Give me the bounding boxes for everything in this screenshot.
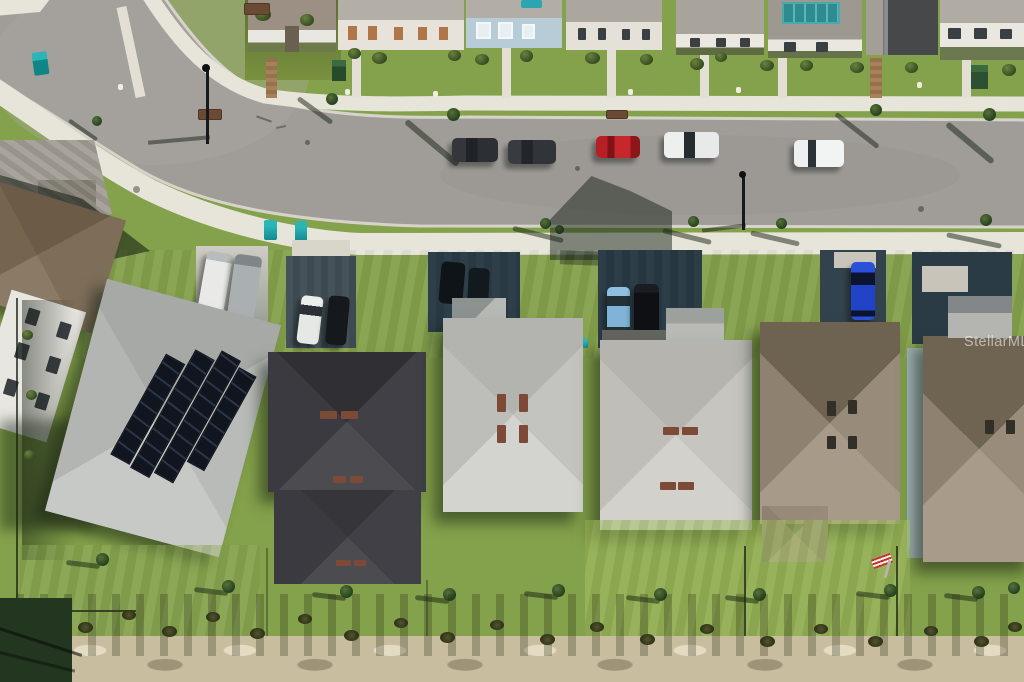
paver-walkway [870,58,882,98]
streetlight-head [739,171,746,178]
pool [521,0,542,8]
house-d-garage [666,308,724,342]
window [784,42,796,52]
tree [326,93,338,105]
ridge-vent [497,394,506,412]
shutter-window [418,27,427,40]
scrub-bush [700,624,714,634]
window [948,28,961,39]
scrub-bush [298,614,312,624]
scrub-bush [250,628,265,639]
bush [850,62,864,73]
bush [22,330,33,340]
tree [980,214,992,226]
window [816,42,828,52]
manhole [918,206,924,212]
utility-marker [433,91,438,97]
top-house-8 [940,0,1024,60]
watermark: StellarMLS [964,334,1024,350]
scrub-bush [974,636,989,647]
red-car [596,136,640,158]
bush [300,14,314,26]
bush [348,48,361,59]
teal-solar-panel [782,2,840,24]
scrub-bush [1008,622,1022,632]
ridge-vent [354,560,366,566]
window [578,28,586,40]
top-house-5 [676,0,764,55]
manhole [305,140,310,145]
scrub-bush [78,622,93,633]
roof-vent [848,436,857,449]
tree [1008,582,1020,594]
ridge-vent [341,411,358,419]
streetlight-head [202,64,210,72]
scrub-bush [760,636,775,647]
scrub-bush [206,612,220,622]
ridge-vent [682,427,698,435]
walkway [778,58,787,98]
house-e-roof [760,322,900,524]
streetlight-pole [742,176,745,230]
window [974,28,987,39]
tree [688,216,699,227]
house-b-roof-rear [268,352,426,492]
tree [447,108,460,121]
utility-marker [736,87,741,93]
tree [776,218,787,229]
scrub-bush [490,620,504,630]
dark-car [452,138,498,162]
aerial-photo: StellarMLS [0,0,1024,682]
scrub-bush [640,634,655,645]
tree [222,580,235,593]
bush [690,58,704,70]
utility-box [971,65,988,89]
top-house-6 [768,0,862,58]
ridge-vent [350,476,363,483]
manhole [133,186,140,193]
utility-marker [118,84,123,90]
ridge-vent [660,482,676,490]
roof-vent [1006,420,1015,434]
ridge-vent [320,411,337,419]
ridge-vent [663,427,679,435]
trash-bin [264,220,277,240]
scrub-bush [540,634,555,645]
trash-bin [295,221,307,241]
house-b-roof-front [274,490,421,584]
blue-car [851,262,875,320]
driveway-sunlit-patch [922,266,968,292]
bush [760,60,774,71]
manhole [575,166,580,171]
window [622,29,630,40]
bush [1002,64,1016,76]
roof-vent [848,400,857,414]
tree [96,553,109,566]
storm-drain [198,109,222,120]
shutter-window [348,26,357,40]
white-window [498,22,513,39]
top-house-3-blue [466,0,562,48]
white-car [794,140,844,167]
scrub-bush [122,610,136,620]
bush [520,50,533,62]
bush [24,450,35,460]
ridge-vent [497,425,506,443]
ridge-vent [519,394,528,412]
utility-marker [917,82,922,88]
white-window [476,22,491,39]
scrub-bush [162,626,177,637]
roof-vent [827,436,836,449]
tree [540,218,551,229]
scrub-bush [440,632,455,643]
ridge-vent [333,476,346,483]
walkway [502,48,511,98]
utility-marker [628,89,633,95]
top-house-2 [338,0,464,50]
paver-walkway [266,58,277,98]
dark-car [325,295,350,346]
streetlight-pole [206,70,209,144]
utility-marker [345,89,350,95]
bush [26,390,37,400]
ridge-vent [336,560,351,566]
house-c-roof [443,318,583,512]
top-house-4 [566,0,662,50]
window [642,29,650,40]
bush [715,52,727,62]
ridge-vent [678,482,694,490]
white-window [522,24,535,39]
dark-gray-car [508,140,556,164]
shutter-window [368,26,377,40]
ridge-vent [519,425,528,443]
bush [640,54,653,65]
scrub-bush [394,618,408,628]
shutter-window [439,27,448,40]
scrub-bush [344,630,359,641]
storm-drain [244,3,270,15]
tree [92,116,102,126]
tree [983,108,996,121]
window [690,38,700,47]
scrub-bush [814,624,828,634]
tree [870,104,882,116]
scrub-bush [590,622,604,632]
window [1000,29,1012,39]
bush [585,52,600,64]
window [598,28,606,40]
utility-box [332,60,346,81]
shutter-window [394,27,403,40]
window [716,38,726,47]
walkway [962,60,971,98]
white-car [664,132,719,158]
window [740,38,750,47]
walkway [607,50,616,98]
storm-drain [606,110,628,119]
house-f-garage [948,296,1012,338]
roof-vent [985,420,994,434]
house-d-roof [600,340,752,530]
bush [475,54,489,65]
chain-link-fence [16,298,18,613]
scrub-row [0,594,1024,656]
roof-vent [827,401,836,416]
bush [800,60,813,71]
bush [448,50,461,61]
scrub-bush [868,636,883,647]
eave [884,0,888,55]
scrub-bush [924,626,938,636]
house-f-roof [923,336,1024,562]
top-house-7-charcoal [866,0,938,55]
bush [372,52,387,64]
bush [905,62,918,73]
stone-column [285,26,299,52]
street-sign [31,51,49,76]
